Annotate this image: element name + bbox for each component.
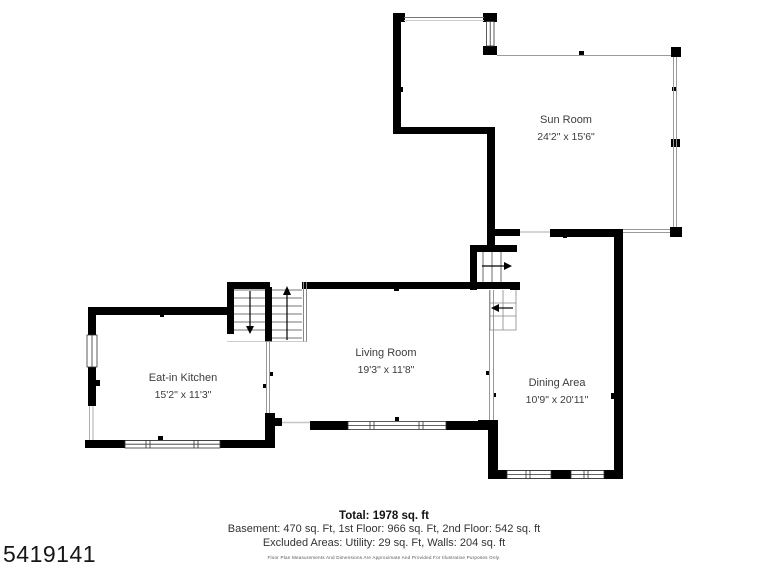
arrow-down-icon bbox=[246, 291, 254, 334]
arrow-left-icon bbox=[491, 304, 513, 312]
room-dimensions: 24'2" x 15'6" bbox=[486, 129, 646, 146]
kitchen-opening bbox=[267, 342, 270, 413]
staircase-rear bbox=[482, 252, 516, 330]
arrow-right-icon bbox=[482, 262, 512, 270]
floor-plan-drawing bbox=[0, 0, 768, 576]
arrow-up-icon bbox=[283, 286, 291, 340]
walls bbox=[85, 13, 623, 479]
room-name: Dining Area bbox=[477, 375, 637, 392]
room-name: Sun Room bbox=[486, 112, 646, 129]
plan-summary: Total: 1978 sq. ft Basement: 470 sq. Ft,… bbox=[0, 509, 768, 561]
window-dining-left bbox=[507, 471, 551, 479]
room-label-living-room: Living Room 19'3" x 11'8" bbox=[306, 345, 466, 379]
window-living-bottom bbox=[348, 422, 446, 430]
window-dining-right bbox=[571, 471, 604, 479]
window-entry bbox=[487, 22, 495, 47]
room-label-eat-in-kitchen: Eat-in Kitchen 15'2" x 11'3" bbox=[103, 370, 263, 404]
room-name: Eat-in Kitchen bbox=[103, 370, 263, 387]
stair-treads bbox=[483, 252, 501, 282]
room-name: Living Room bbox=[306, 345, 466, 362]
room-label-dining-area: Dining Area 10'9" x 20'11" bbox=[477, 375, 637, 409]
floor-areas-text: Basement: 470 sq. Ft, 1st Floor: 966 sq.… bbox=[0, 523, 768, 537]
disclaimer-text: Floor Plan Measurements And Dimensions A… bbox=[0, 554, 768, 561]
windows bbox=[87, 22, 604, 479]
total-area-text: Total: 1978 sq. ft bbox=[0, 509, 768, 523]
room-dimensions: 19'3" x 11'8" bbox=[306, 362, 466, 379]
floor-plan-page: Sun Room 24'2" x 15'6" Eat-in Kitchen 15… bbox=[0, 0, 768, 576]
room-label-sun-room: Sun Room 24'2" x 15'6" bbox=[486, 112, 646, 146]
excluded-areas-text: Excluded Areas: Utility: 29 sq. Ft, Wall… bbox=[0, 537, 768, 551]
stair-edge-lines bbox=[304, 282, 307, 342]
room-dimensions: 15'2" x 11'3" bbox=[103, 387, 263, 404]
listing-id: 5419141 bbox=[3, 541, 96, 568]
window-kitchen-bottom bbox=[125, 441, 220, 449]
room-dimensions: 10'9" x 20'11" bbox=[477, 392, 637, 409]
